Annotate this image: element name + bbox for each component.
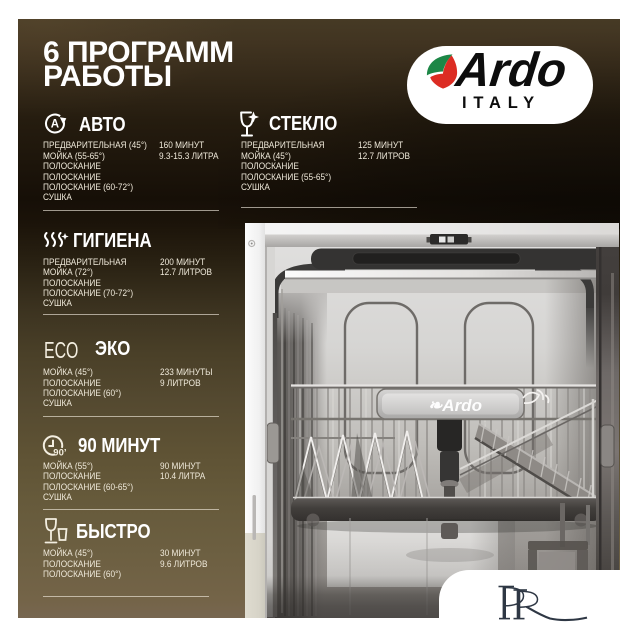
svg-text:90’: 90’ (53, 447, 66, 458)
svg-text:❧Ardo: ❧Ardo (428, 396, 482, 415)
svg-text:A: A (51, 119, 59, 131)
